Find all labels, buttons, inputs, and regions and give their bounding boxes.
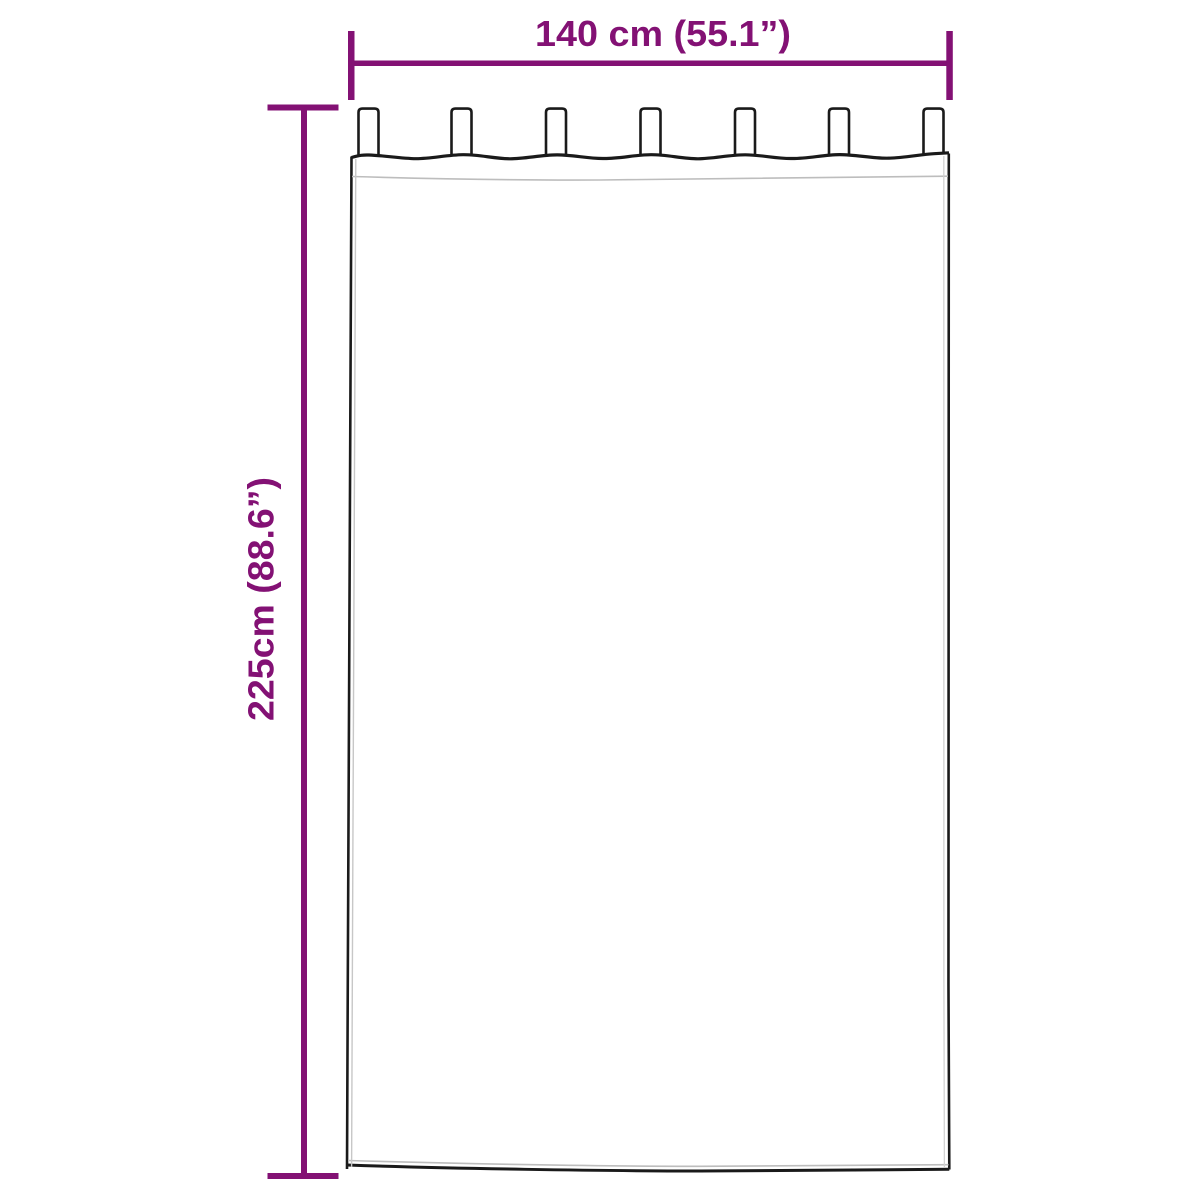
svg-text:225cm (88.6”): 225cm (88.6”) bbox=[241, 477, 282, 721]
svg-text:140 cm (55.1”): 140 cm (55.1”) bbox=[535, 13, 791, 54]
